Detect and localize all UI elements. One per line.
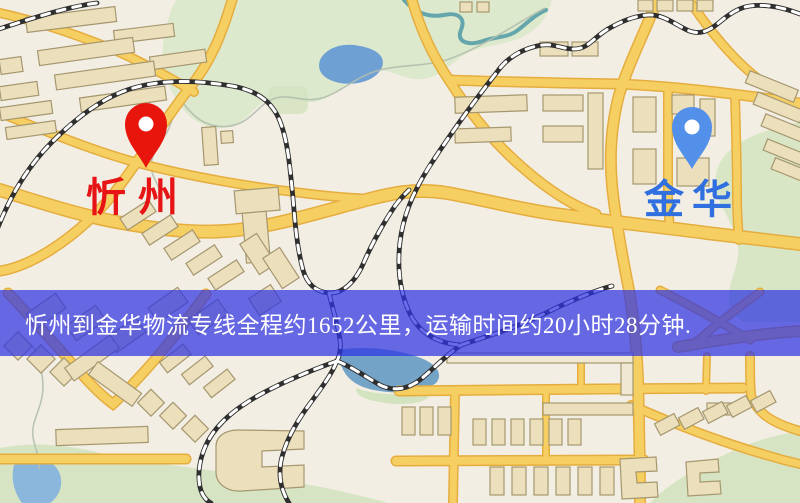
destination-city-label: 金华 [644, 180, 740, 220]
map-graphics [0, 0, 800, 503]
map-canvas[interactable]: 忻州到金华物流专线全程约1652公里，运输时间约20小时28分钟. 忻州 金华 [0, 0, 800, 503]
origin-pin-icon[interactable] [119, 96, 173, 172]
route-info-text: 忻州到金华物流专线全程约1652公里，运输时间约20小时28分钟. [0, 306, 691, 340]
destination-pin-icon[interactable] [666, 100, 718, 173]
route-info-banner: 忻州到金华物流专线全程约1652公里，运输时间约20小时28分钟. [0, 290, 800, 356]
origin-pin-shape [125, 103, 167, 168]
destination-pin-hole [685, 120, 700, 135]
origin-city-label: 忻州 [86, 178, 190, 218]
origin-pin-hole [139, 117, 154, 132]
destination-pin-shape [672, 107, 712, 169]
